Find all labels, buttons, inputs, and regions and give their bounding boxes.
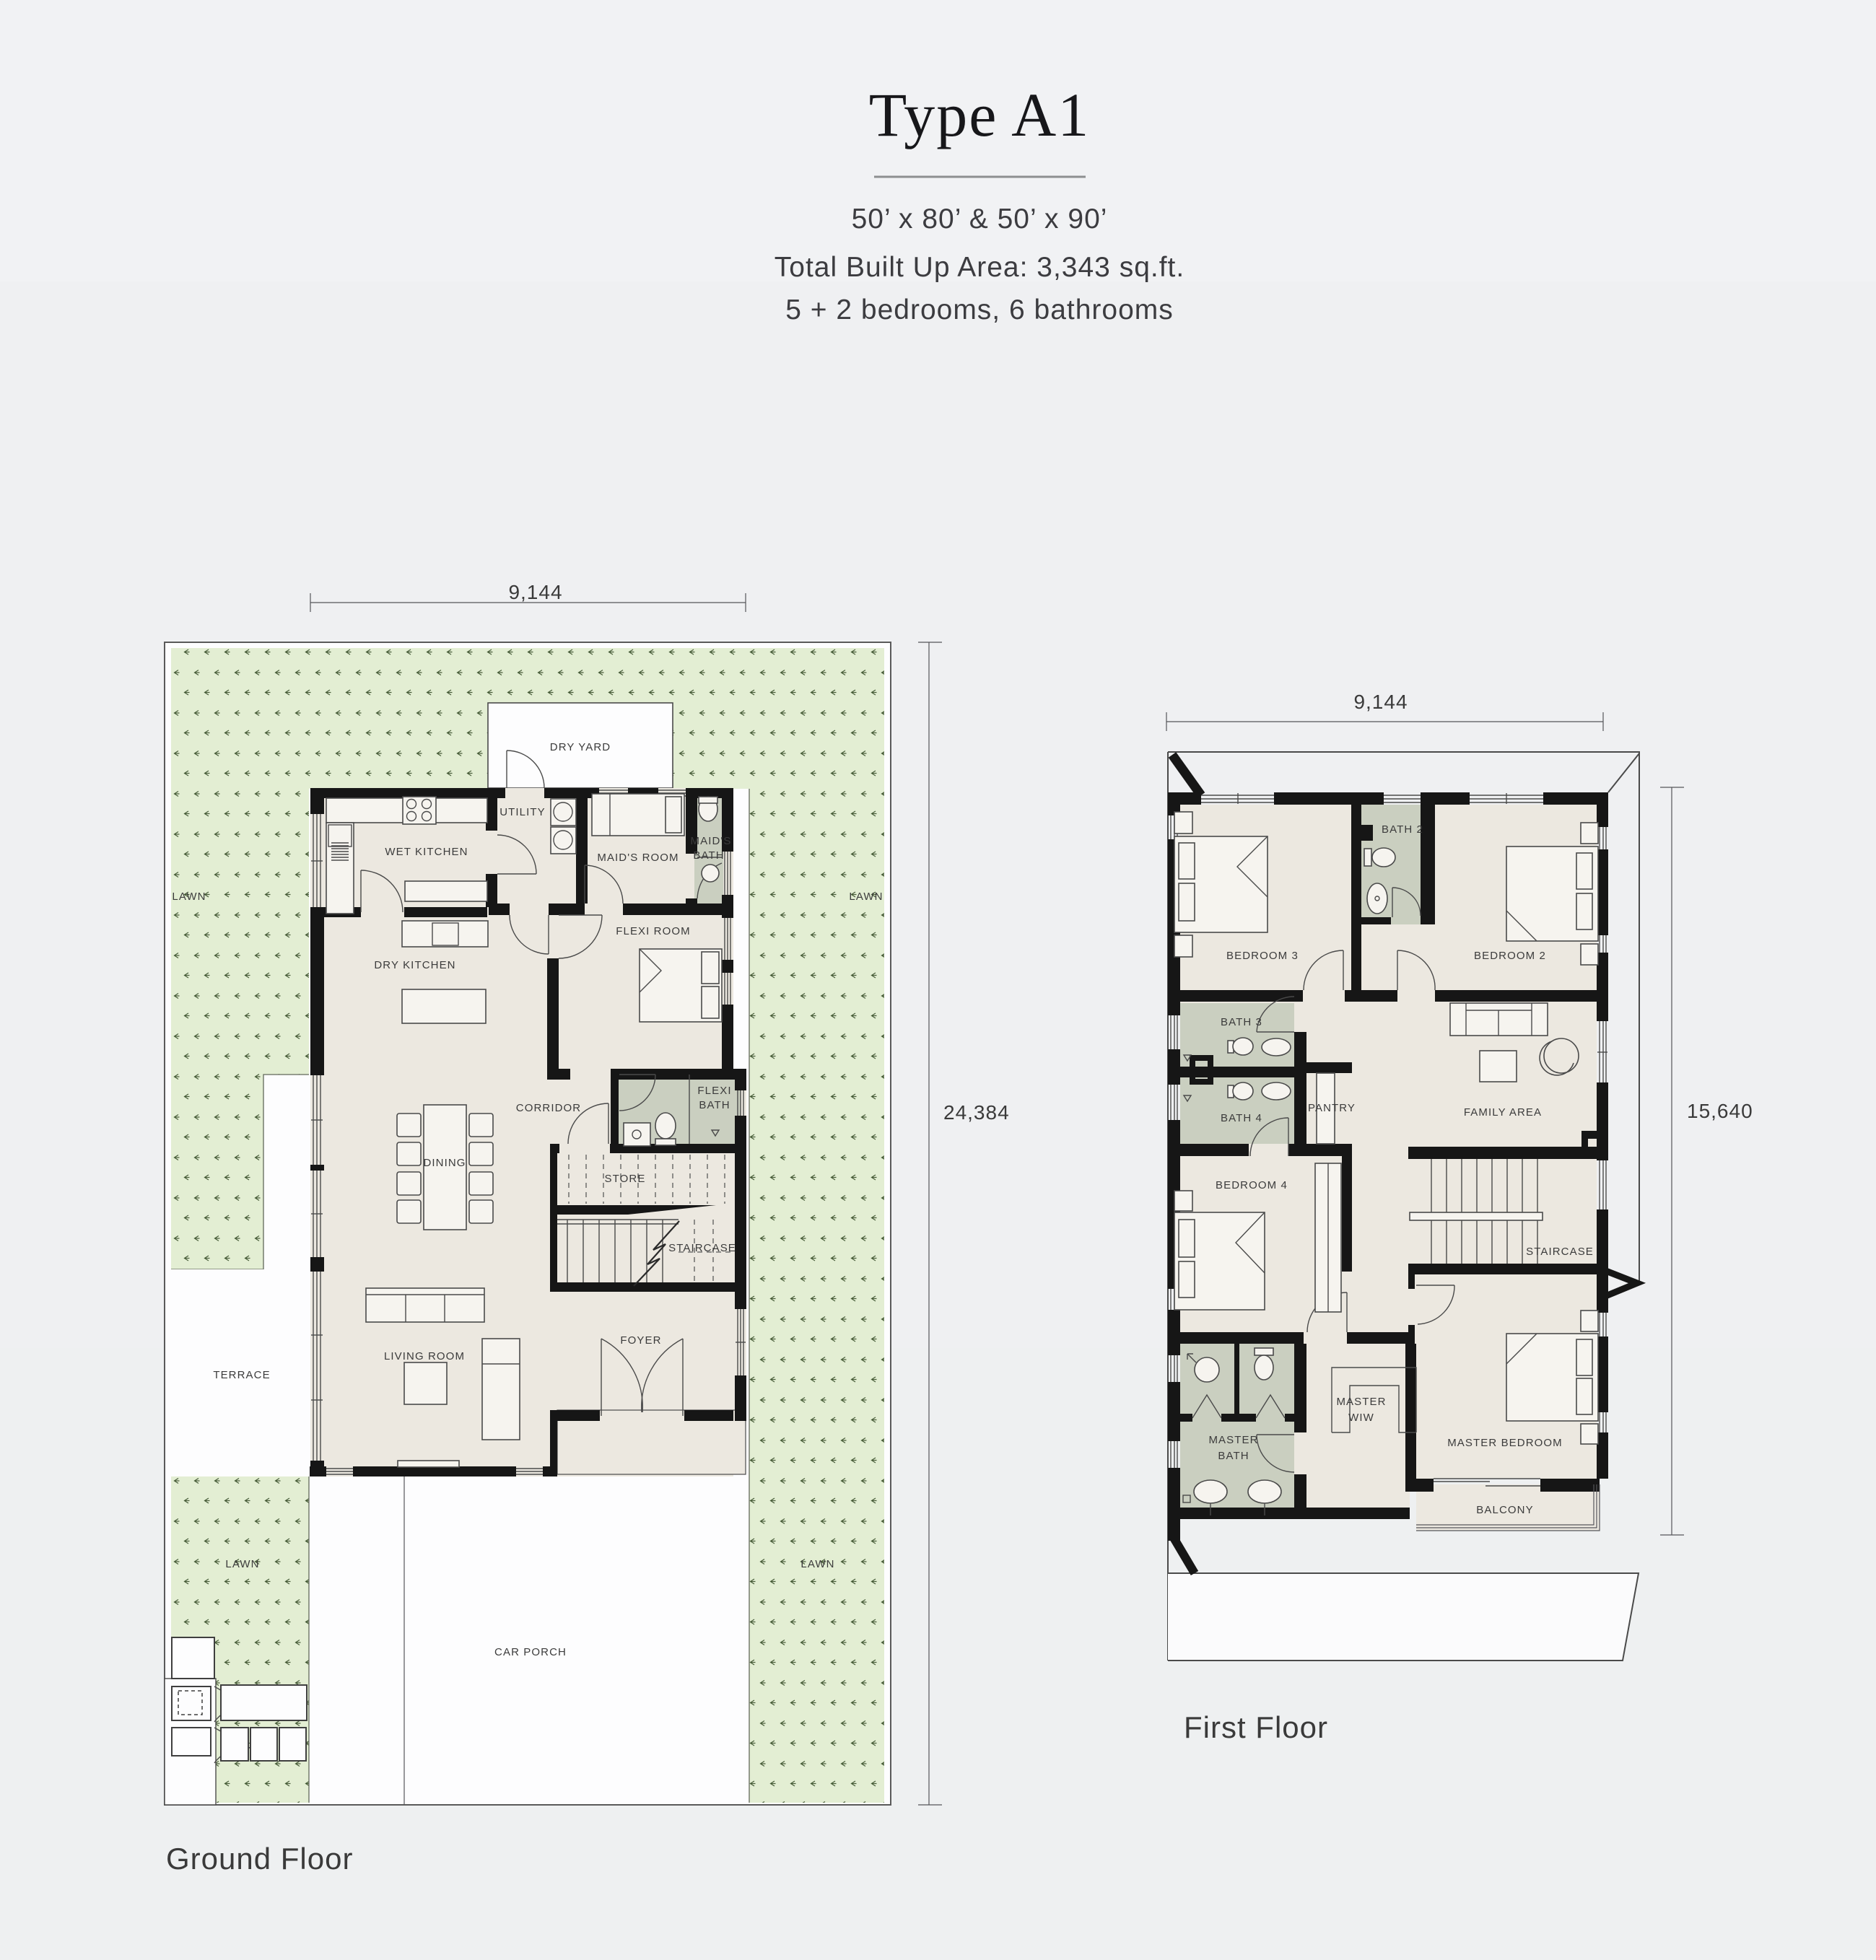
svg-text:BEDROOM 2: BEDROOM 2 [1474, 950, 1546, 962]
svg-text:Type A1: Type A1 [869, 80, 1091, 149]
svg-text:50’ x 80’ & 50’ x 90’: 50’ x 80’ & 50’ x 90’ [852, 204, 1108, 235]
svg-text:BATH: BATH [693, 849, 724, 862]
svg-text:CORRIDOR: CORRIDOR [516, 1102, 581, 1114]
svg-text:9,144: 9,144 [508, 581, 562, 603]
svg-text:LAWN: LAWN [225, 1558, 259, 1570]
svg-text:15,640: 15,640 [1687, 1100, 1753, 1122]
svg-text:LAWN: LAWN [849, 891, 883, 903]
svg-text:BATH 4: BATH 4 [1221, 1112, 1262, 1124]
svg-text:9,144: 9,144 [1353, 691, 1408, 713]
svg-text:Ground Floor: Ground Floor [166, 1842, 353, 1876]
svg-text:BEDROOM 3: BEDROOM 3 [1226, 950, 1299, 962]
svg-text:DRY YARD: DRY YARD [550, 741, 611, 753]
svg-text:FAMILY AREA: FAMILY AREA [1464, 1106, 1542, 1119]
svg-text:MAID'S: MAID'S [691, 835, 732, 847]
svg-text:BEDROOM 4: BEDROOM 4 [1216, 1179, 1288, 1191]
svg-text:UTILITY: UTILITY [499, 806, 546, 818]
svg-text:BATH: BATH [1218, 1450, 1249, 1462]
svg-text:FOYER: FOYER [620, 1334, 661, 1347]
svg-text:DRY KITCHEN: DRY KITCHEN [374, 959, 455, 971]
svg-text:5 + 2 bedrooms, 6 bathrooms: 5 + 2 bedrooms, 6 bathrooms [785, 294, 1174, 325]
svg-text:MASTER BEDROOM: MASTER BEDROOM [1447, 1437, 1563, 1449]
svg-text:BATH 2: BATH 2 [1382, 823, 1423, 836]
svg-text:WET KITCHEN: WET KITCHEN [385, 846, 468, 858]
svg-text:STORE: STORE [605, 1173, 646, 1185]
svg-text:DINING: DINING [423, 1157, 466, 1169]
svg-text:LIVING ROOM: LIVING ROOM [384, 1350, 465, 1362]
svg-text:STAIRCASE: STAIRCASE [668, 1242, 736, 1254]
svg-text:MASTER: MASTER [1208, 1434, 1258, 1446]
svg-text:BATH 3: BATH 3 [1221, 1016, 1262, 1028]
svg-text:STAIRCASE: STAIRCASE [1526, 1246, 1594, 1258]
svg-text:FLEXI: FLEXI [697, 1085, 731, 1097]
svg-text:LAWN: LAWN [800, 1558, 834, 1570]
svg-text:First Floor: First Floor [1184, 1710, 1328, 1744]
svg-text:MASTER: MASTER [1336, 1396, 1386, 1408]
svg-text:CAR PORCH: CAR PORCH [494, 1646, 567, 1658]
svg-text:PANTRY: PANTRY [1308, 1102, 1356, 1114]
svg-text:FLEXI ROOM: FLEXI ROOM [616, 925, 691, 937]
svg-text:BALCONY: BALCONY [1476, 1504, 1533, 1516]
svg-text:Total Built Up Area: 3,343 sq.: Total Built Up Area: 3,343 sq.ft. [775, 252, 1185, 283]
svg-text:24,384: 24,384 [943, 1101, 1010, 1124]
svg-text:TERRACE: TERRACE [213, 1369, 270, 1381]
svg-text:MAID'S ROOM: MAID'S ROOM [597, 852, 679, 864]
svg-text:LAWN: LAWN [172, 891, 206, 903]
svg-text:BATH: BATH [699, 1099, 730, 1111]
svg-text:WIW: WIW [1348, 1412, 1374, 1424]
